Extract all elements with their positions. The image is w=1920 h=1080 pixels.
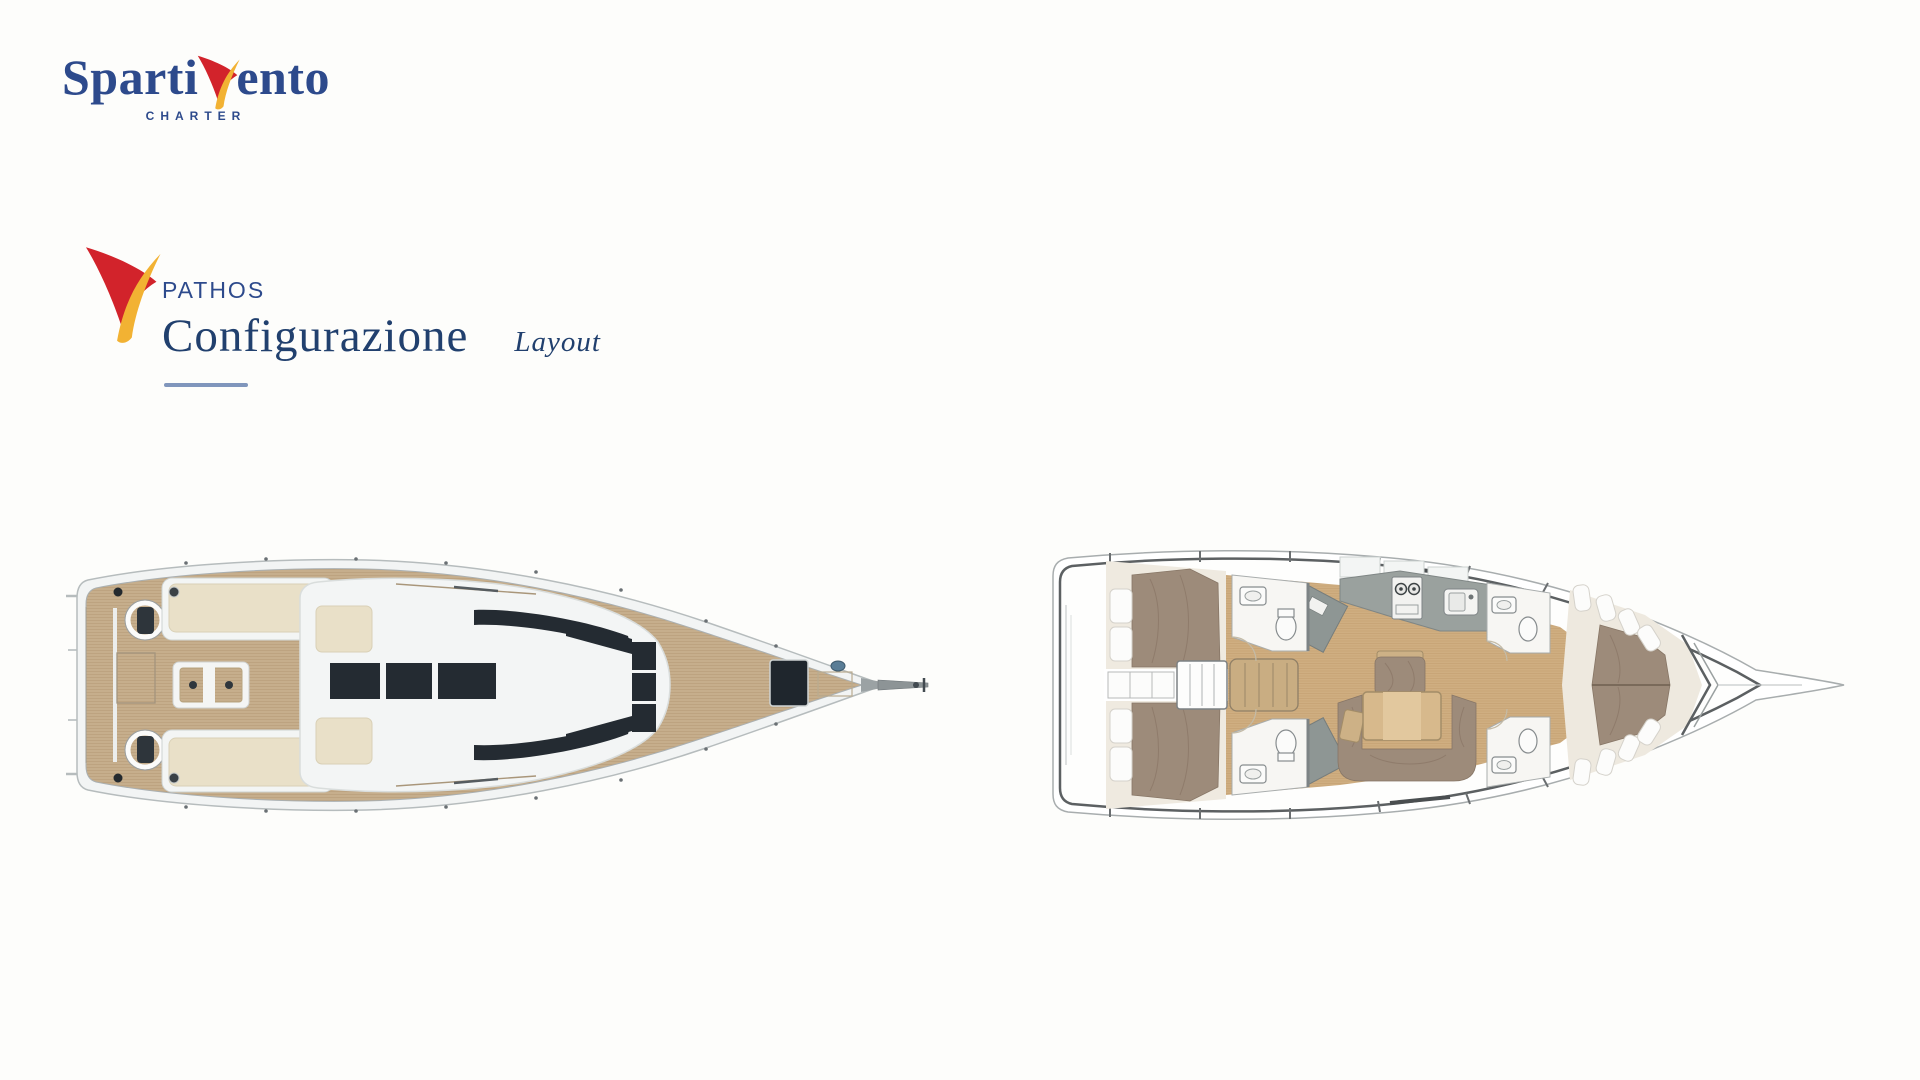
page-title: Configurazione: [162, 309, 468, 363]
page-subtitle: Layout: [514, 326, 601, 359]
page: Sparti ento CHARTER PATHOS Configurazion…: [0, 0, 1920, 1080]
logo-row: Sparti ento: [62, 48, 330, 106]
logo-text-part1: Sparti: [62, 48, 198, 106]
section-text: PATHOS Configurazione Layout: [162, 244, 601, 387]
layout-settee: [1230, 659, 1298, 711]
interior-layout-figure: [1040, 545, 1860, 825]
boat-name: PATHOS: [162, 277, 601, 304]
logo-tagline: CHARTER: [62, 109, 330, 123]
layout-aft-cabin-starboard: [1106, 701, 1226, 809]
deck-plan-bowsprit: [861, 678, 928, 692]
layout-aft-cabin-port: [1106, 561, 1226, 669]
logo-text-part2: ento: [236, 48, 330, 106]
sail-section-icon: [74, 244, 170, 344]
layout-forward-cabin: [1562, 584, 1702, 786]
deck-plan-figure: [66, 550, 946, 820]
sail-logo-icon: [195, 52, 241, 112]
deck-plan: [66, 550, 946, 820]
title-underline: [164, 383, 248, 387]
section-header: PATHOS Configurazione Layout: [74, 244, 601, 387]
title-row: Configurazione Layout: [162, 309, 601, 363]
spartivento-logo: Sparti ento CHARTER: [62, 48, 330, 123]
interior-layout-plan: [1040, 545, 1860, 825]
